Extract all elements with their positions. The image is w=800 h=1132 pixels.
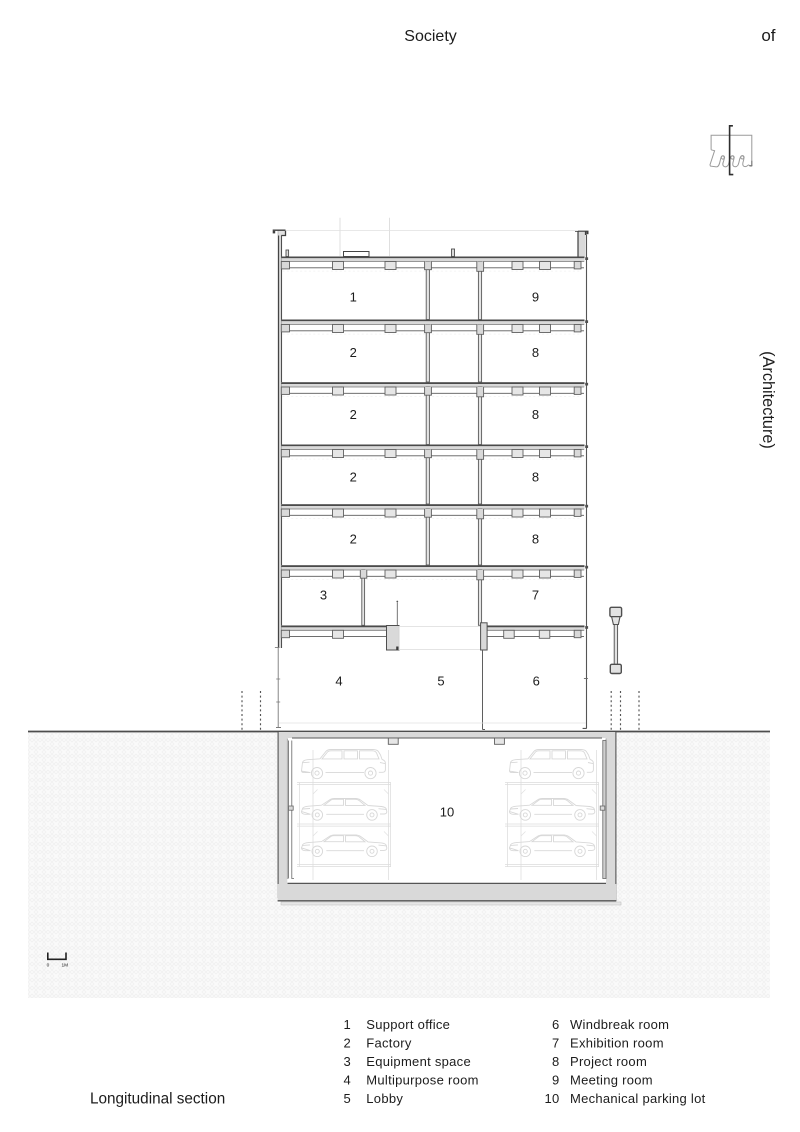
svg-text:Longitudinal section: Longitudinal section [90, 1091, 225, 1108]
svg-text:Society: Society [404, 28, 456, 45]
svg-text:Lobby: Lobby [366, 1091, 403, 1106]
svg-text:10: 10 [440, 805, 454, 820]
svg-text:8: 8 [532, 469, 539, 484]
svg-text:10: 10 [544, 1091, 559, 1106]
svg-text:Factory: Factory [366, 1036, 412, 1051]
svg-text:2: 2 [350, 531, 357, 546]
svg-text:Project room: Project room [570, 1054, 647, 1069]
svg-text:Multipurpose room: Multipurpose room [366, 1073, 478, 1088]
svg-text:4: 4 [343, 1073, 351, 1088]
svg-text:2: 2 [343, 1036, 351, 1051]
svg-text:8: 8 [532, 407, 539, 422]
svg-text:9: 9 [532, 289, 539, 304]
svg-text:3: 3 [320, 587, 327, 602]
svg-text:(Architecture): (Architecture) [759, 351, 777, 449]
svg-text:5: 5 [343, 1091, 351, 1106]
svg-text:8: 8 [552, 1054, 560, 1069]
svg-text:9: 9 [552, 1073, 560, 1088]
svg-text:Equipment space: Equipment space [366, 1054, 471, 1069]
svg-text:Windbreak room: Windbreak room [570, 1017, 669, 1032]
svg-text:8: 8 [532, 345, 539, 360]
svg-text:3: 3 [343, 1054, 351, 1069]
svg-text:7: 7 [552, 1036, 560, 1051]
svg-text:0: 0 [47, 963, 50, 969]
svg-text:8: 8 [532, 531, 539, 546]
svg-text:Exhibition room: Exhibition room [570, 1036, 664, 1051]
svg-text:4: 4 [335, 673, 342, 688]
svg-text:1M: 1M [61, 963, 68, 969]
svg-text:5: 5 [437, 673, 444, 688]
svg-text:1: 1 [350, 289, 357, 304]
svg-text:Mechanical parking lot: Mechanical parking lot [570, 1091, 706, 1106]
svg-text:2: 2 [350, 407, 357, 422]
svg-text:2: 2 [350, 345, 357, 360]
svg-text:2: 2 [350, 469, 357, 484]
svg-text:Meeting room: Meeting room [570, 1073, 653, 1088]
svg-text:6: 6 [533, 673, 540, 688]
svg-text:7: 7 [532, 587, 539, 602]
svg-text:of: of [761, 26, 775, 45]
svg-text:1: 1 [343, 1017, 351, 1032]
svg-text:Support office: Support office [366, 1017, 450, 1032]
svg-text:6: 6 [552, 1017, 560, 1032]
